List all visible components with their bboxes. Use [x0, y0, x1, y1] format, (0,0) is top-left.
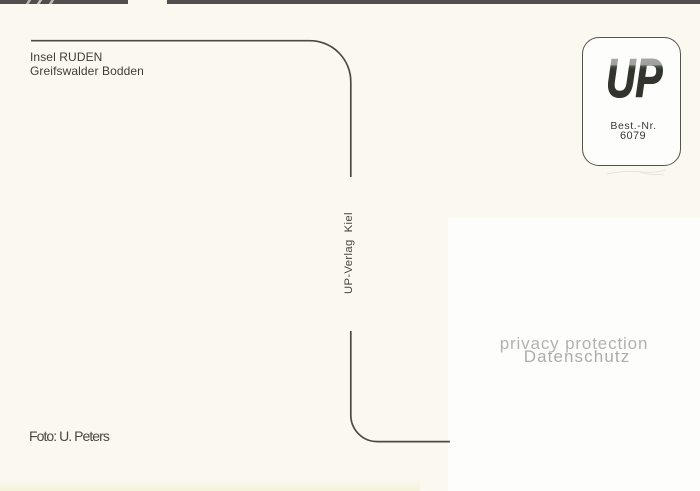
- svg-text:UP: UP: [606, 48, 663, 109]
